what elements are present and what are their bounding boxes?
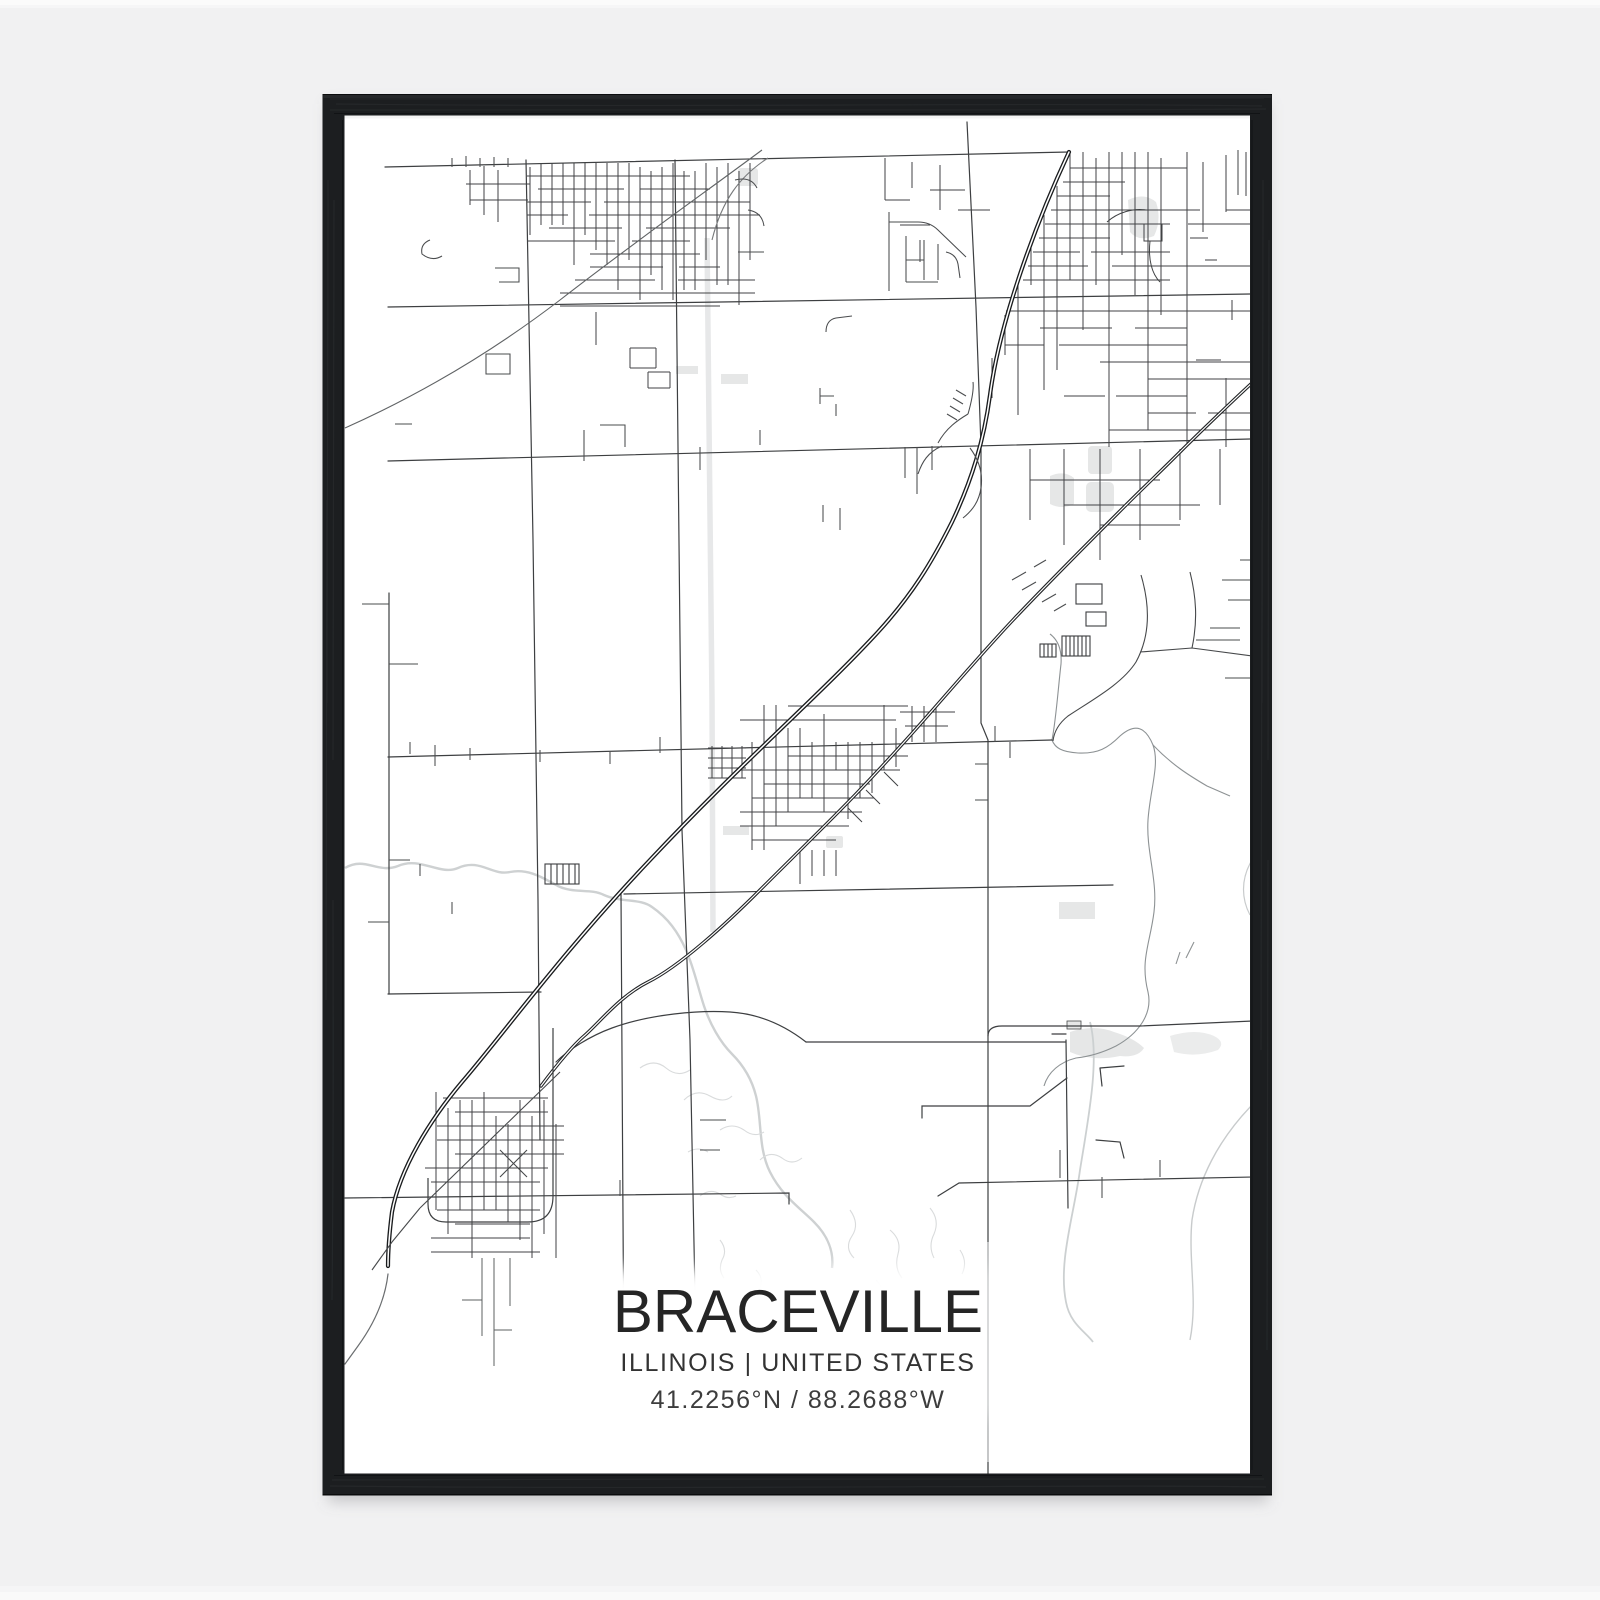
svg-text:41.2256°N / 88.2688°W: 41.2256°N / 88.2688°W	[651, 1386, 946, 1414]
svg-text:ILLINOIS | UNITED STATES: ILLINOIS | UNITED STATES	[620, 1349, 975, 1377]
svg-text:BRACEVILLE: BRACEVILLE	[613, 1278, 983, 1345]
